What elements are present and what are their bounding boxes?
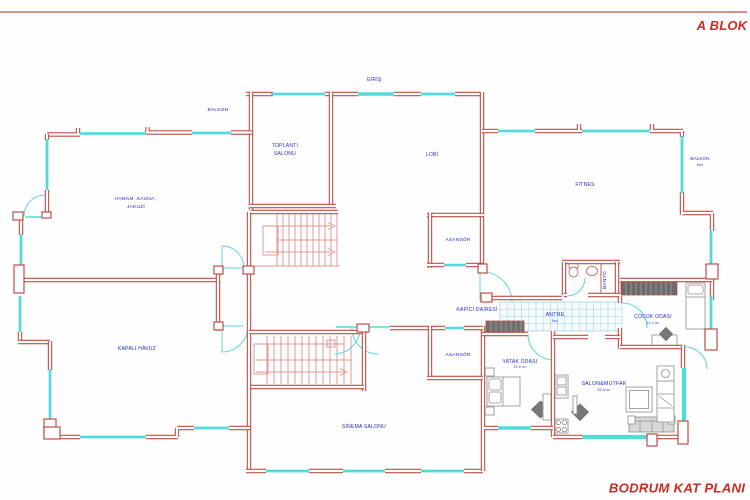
svg-text:HAMAM ,SAUNA ,: HAMAM ,SAUNA ,: [115, 196, 158, 202]
svg-text:A BLOK: A BLOK: [696, 18, 749, 33]
svg-text:ÇOCUK ODASI: ÇOCUK ODASI: [634, 314, 672, 320]
svg-text:FITNES: FITNES: [575, 182, 595, 188]
svg-text:BALKON: BALKON: [208, 107, 229, 113]
svg-text:8m²: 8m²: [552, 319, 559, 323]
svg-text:LOBİ: LOBİ: [426, 151, 438, 158]
svg-text:26.5 m²: 26.5 m²: [597, 388, 611, 392]
svg-text:11.2 m²: 11.2 m²: [647, 321, 661, 325]
svg-text:SALONU: SALONU: [274, 151, 296, 157]
svg-text:12.6 m²: 12.6 m²: [513, 365, 527, 369]
svg-text:BODRUM KAT PLANI: BODRUM KAT PLANI: [609, 481, 745, 496]
svg-text:ASANSÖR: ASANSÖR: [445, 351, 470, 358]
svg-text:8m²: 8m²: [697, 163, 704, 167]
svg-text:KAPALI HAVUZ: KAPALI HAVUZ: [118, 346, 156, 352]
svg-text:GİRİŞ: GİRİŞ: [367, 76, 382, 83]
svg-text:BALKON: BALKON: [690, 156, 709, 161]
svg-text:JAKUZİ: JAKUZİ: [127, 203, 145, 210]
svg-text:BANYO: BANYO: [602, 271, 608, 289]
svg-text:SALON&MUTFAK: SALON&MUTFAK: [581, 381, 626, 387]
svg-text:KAPICI DAİRESİ: KAPICI DAİRESİ: [456, 306, 497, 313]
svg-text:ASANSÖR: ASANSÖR: [445, 236, 470, 243]
svg-text:TOPLANTI: TOPLANTI: [272, 143, 298, 149]
svg-text:ANTRE: ANTRE: [546, 312, 565, 318]
svg-text:SİNEMA SALONU: SİNEMA SALONU: [342, 423, 386, 430]
